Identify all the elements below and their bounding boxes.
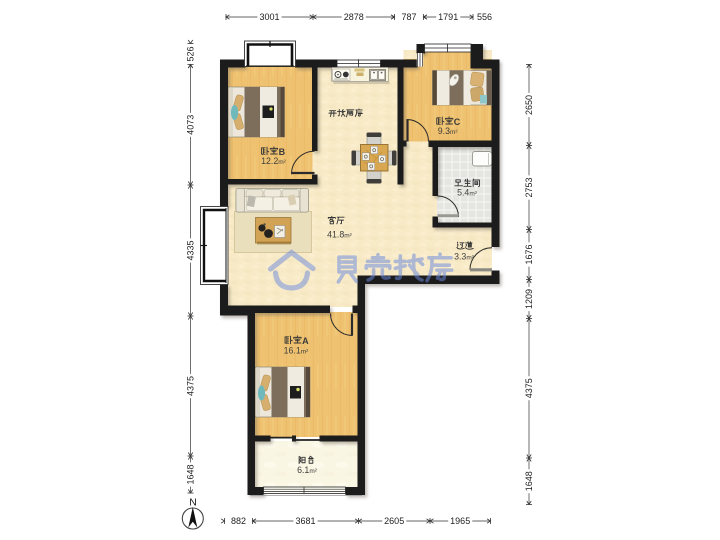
- svg-text:787: 787: [401, 12, 416, 22]
- svg-text:2605: 2605: [384, 516, 404, 526]
- svg-text:882: 882: [231, 516, 246, 526]
- svg-text:B: B: [279, 147, 286, 157]
- svg-text:4335: 4335: [186, 240, 196, 260]
- svg-text:2753: 2753: [524, 177, 534, 197]
- svg-text:4375: 4375: [524, 378, 534, 398]
- svg-text:4375: 4375: [186, 376, 196, 396]
- svg-text:1648: 1648: [186, 464, 196, 484]
- svg-text:3681: 3681: [295, 516, 315, 526]
- svg-text:2650: 2650: [524, 95, 534, 115]
- svg-text:1676: 1676: [524, 244, 534, 264]
- svg-text:526: 526: [186, 46, 196, 61]
- svg-text:3001: 3001: [259, 12, 279, 22]
- svg-text:2878: 2878: [344, 12, 364, 22]
- svg-text:1648: 1648: [524, 471, 534, 491]
- svg-text:N: N: [189, 497, 197, 509]
- svg-text:556: 556: [477, 12, 492, 22]
- svg-text:1209: 1209: [524, 289, 534, 309]
- svg-text:1965: 1965: [450, 516, 470, 526]
- svg-text:A: A: [302, 336, 309, 346]
- svg-text:4073: 4073: [186, 115, 196, 135]
- svg-text:1791: 1791: [438, 12, 458, 22]
- svg-text:C: C: [454, 117, 461, 127]
